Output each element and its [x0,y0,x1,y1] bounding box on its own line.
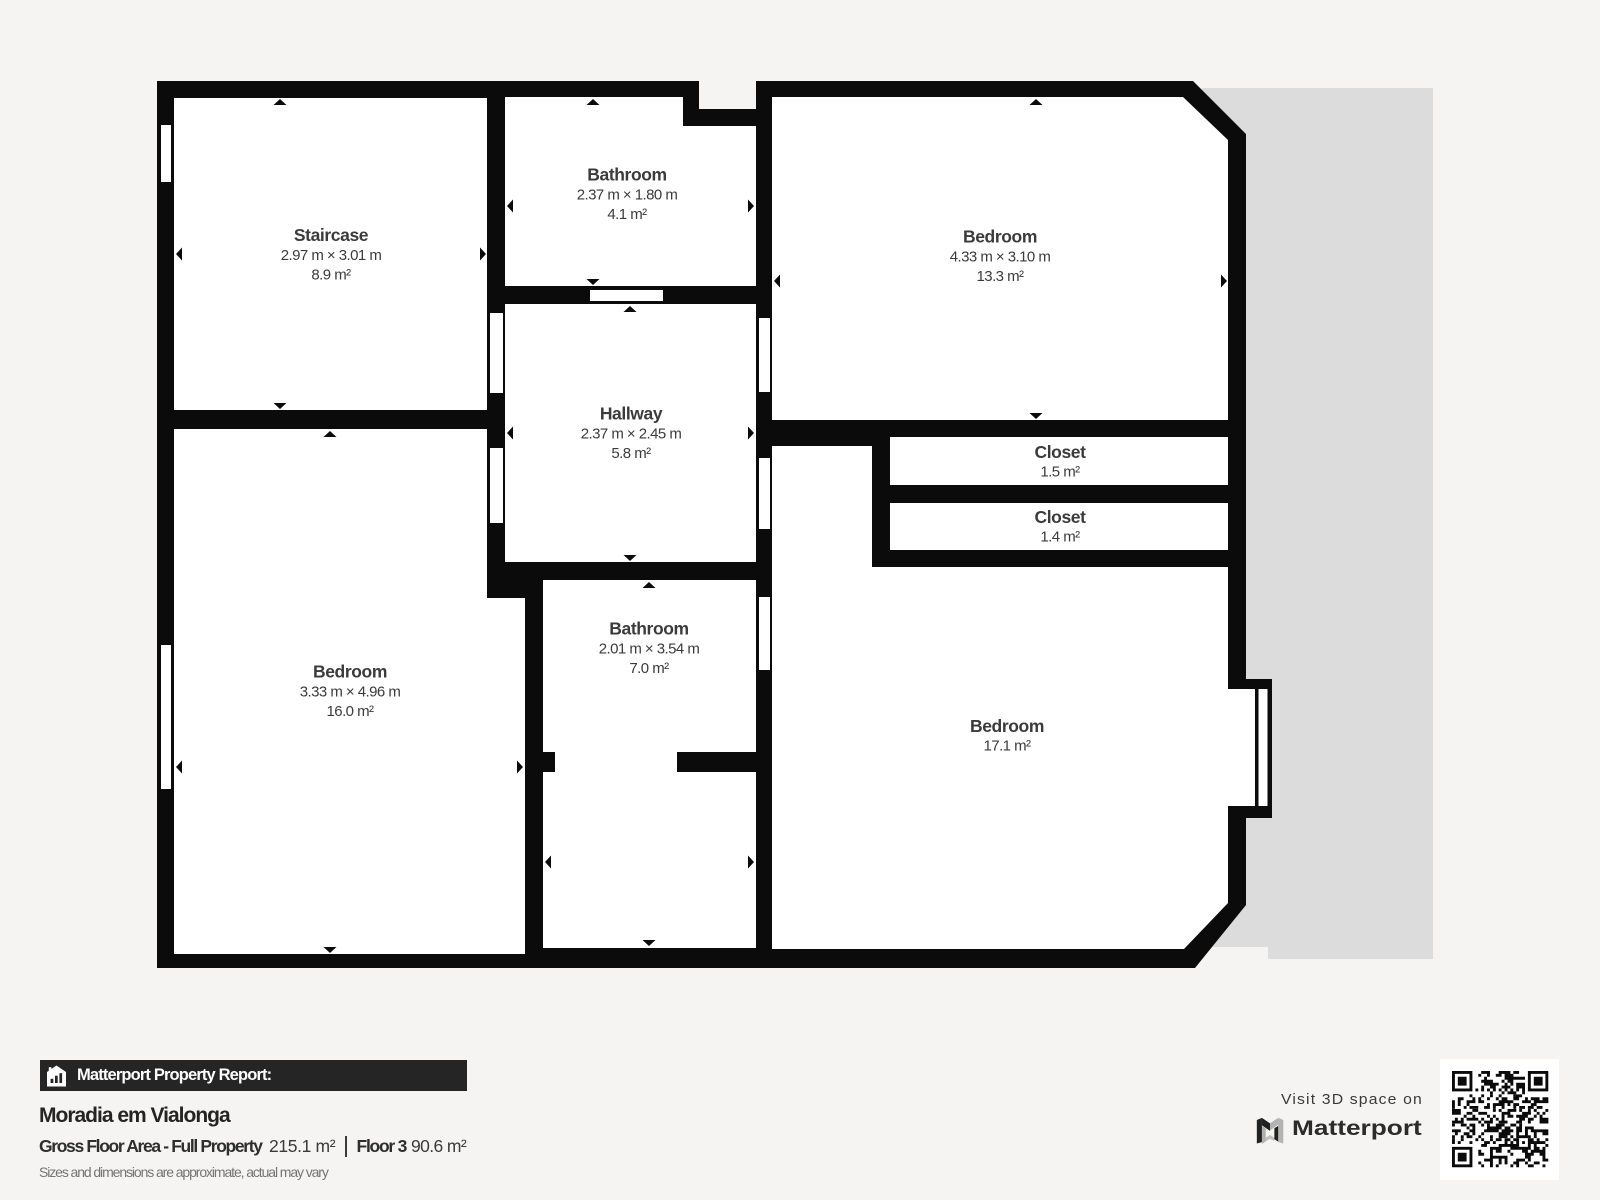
svg-text:Staircase: Staircase [294,225,369,245]
svg-text:Bathroom: Bathroom [587,165,666,185]
svg-text:4.33 m × 3.10 m: 4.33 m × 3.10 m [950,249,1051,266]
svg-text:3.33 m × 4.96 m: 3.33 m × 4.96 m [300,684,401,701]
svg-text:Bathroom: Bathroom [609,619,688,639]
svg-text:17.1 m²: 17.1 m² [983,738,1031,755]
svg-text:Hallway: Hallway [600,404,663,424]
svg-text:2.01 m × 3.54 m: 2.01 m × 3.54 m [599,641,700,658]
svg-text:2.97 m × 3.01 m: 2.97 m × 3.01 m [281,247,382,264]
svg-text:2.37 m × 2.45 m: 2.37 m × 2.45 m [581,426,682,443]
svg-text:16.0 m²: 16.0 m² [326,703,374,720]
svg-text:Bedroom: Bedroom [970,716,1044,736]
svg-text:Closet: Closet [1034,507,1086,527]
svg-text:Closet: Closet [1034,442,1086,462]
svg-text:4.1 m²: 4.1 m² [607,206,647,223]
svg-text:7.0 m²: 7.0 m² [629,660,669,677]
svg-text:Bedroom: Bedroom [963,227,1037,247]
svg-text:8.9 m²: 8.9 m² [311,266,351,283]
svg-text:Bedroom: Bedroom [313,662,387,682]
svg-text:2.37 m × 1.80 m: 2.37 m × 1.80 m [577,187,678,204]
svg-text:1.4 m²: 1.4 m² [1040,529,1080,546]
svg-text:5.8 m²: 5.8 m² [611,445,651,462]
svg-text:13.3 m²: 13.3 m² [976,268,1024,285]
svg-text:1.5 m²: 1.5 m² [1040,464,1080,481]
